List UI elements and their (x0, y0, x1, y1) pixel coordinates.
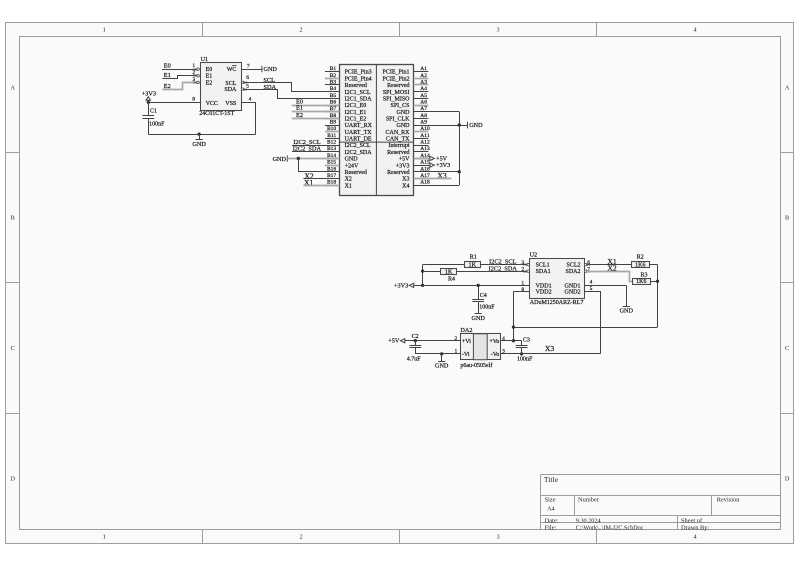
svg-text:A11: A11 (420, 133, 430, 139)
svg-text:I2C1_E1: I2C1_E1 (345, 110, 367, 116)
svg-text:100nF: 100nF (517, 357, 533, 363)
svg-text:File:: File: (545, 525, 557, 532)
svg-text:E0: E0 (206, 67, 213, 73)
svg-text:2: 2 (454, 336, 457, 342)
svg-text:ADuM1250ARZ-RL7: ADuM1250ARZ-RL7 (530, 300, 584, 306)
svg-text:A5: A5 (420, 93, 427, 99)
svg-text:A13: A13 (420, 146, 430, 152)
svg-text:WC: WC (227, 67, 237, 73)
svg-text:I2C2_SCL: I2C2_SCL (345, 143, 371, 149)
svg-text:1K6: 1K6 (636, 279, 646, 285)
svg-text:UART_RX: UART_RX (345, 123, 373, 129)
svg-text:A8: A8 (420, 113, 427, 119)
svg-text:Reserved: Reserved (387, 170, 409, 176)
svg-text:A12: A12 (420, 140, 430, 146)
svg-text:A: A (10, 85, 15, 92)
svg-text:A9: A9 (420, 120, 427, 126)
svg-text:PCIE_Pin1: PCIE_Pin1 (382, 70, 409, 76)
svg-text:I2C2_SDA: I2C2_SDA (345, 150, 373, 156)
svg-text:GND: GND (345, 157, 359, 163)
svg-text:C1: C1 (150, 109, 157, 115)
svg-text:I2C2_SDA: I2C2_SDA (489, 266, 518, 273)
svg-text:1K: 1K (445, 269, 453, 276)
svg-text:E1: E1 (206, 74, 213, 80)
svg-text:-Vi: -Vi (462, 352, 470, 358)
svg-text:GND: GND (435, 363, 449, 370)
svg-text:Sheet of: Sheet of (681, 517, 703, 524)
svg-text:PCIE_Pin3: PCIE_Pin3 (345, 70, 372, 76)
svg-text:GND: GND (264, 66, 278, 73)
svg-text:X4: X4 (402, 183, 409, 189)
svg-text:B2: B2 (330, 73, 337, 79)
svg-text:B: B (11, 215, 15, 222)
svg-text:Date:: Date: (545, 517, 559, 524)
svg-text:C2: C2 (412, 334, 419, 340)
svg-text:4: 4 (249, 96, 252, 102)
svg-text:9.30.2024: 9.30.2024 (576, 517, 601, 524)
svg-text:SCL1: SCL1 (536, 263, 550, 269)
svg-text:SDA1: SDA1 (536, 269, 551, 275)
svg-text:A3: A3 (420, 79, 427, 85)
svg-text:100nF: 100nF (149, 122, 165, 128)
svg-text:5: 5 (246, 83, 249, 89)
svg-text:I2C1_SDA: I2C1_SDA (345, 97, 373, 103)
svg-text:Reserved: Reserved (387, 83, 409, 89)
svg-text:GND: GND (471, 315, 485, 322)
svg-text:I2C1_E2: I2C1_E2 (345, 117, 367, 123)
svg-text:4: 4 (693, 533, 696, 540)
svg-text:I2C1_E0: I2C1_E0 (345, 103, 367, 109)
svg-text:3: 3 (497, 27, 500, 34)
svg-text:2: 2 (300, 27, 303, 34)
svg-text:C: C (785, 345, 789, 352)
svg-text:B6: B6 (330, 100, 337, 106)
svg-text:Size: Size (545, 496, 556, 503)
svg-text:SPI_CS: SPI_CS (390, 103, 409, 109)
svg-text:I2C1_SCL: I2C1_SCL (345, 90, 371, 96)
svg-text:SCL: SCL (225, 81, 236, 87)
svg-text:C4: C4 (480, 293, 487, 299)
svg-text:Interrupt: Interrupt (389, 143, 410, 149)
svg-text:SDA: SDA (263, 84, 276, 91)
svg-text:24C01CT-1ST: 24C01CT-1ST (199, 111, 234, 117)
svg-text:+3V3: +3V3 (142, 91, 156, 98)
svg-text:1: 1 (103, 27, 106, 34)
svg-text:E0: E0 (164, 62, 171, 69)
svg-text:SDA: SDA (224, 87, 237, 93)
svg-text:+5V: +5V (399, 157, 410, 163)
svg-text:B3: B3 (330, 79, 337, 85)
svg-text:1: 1 (103, 533, 106, 540)
svg-text:B: B (785, 215, 789, 222)
svg-text:B10: B10 (327, 126, 336, 132)
svg-text:4: 4 (502, 336, 505, 342)
svg-text:A15: A15 (420, 160, 430, 166)
svg-text:B9: B9 (330, 120, 337, 126)
svg-text:GND: GND (469, 122, 483, 129)
svg-text:+3V3: +3V3 (394, 283, 408, 290)
svg-text:1K6: 1K6 (635, 262, 645, 268)
svg-text:U2: U2 (530, 252, 538, 259)
svg-text:4.7uF: 4.7uF (407, 357, 422, 363)
svg-text:VSS: VSS (225, 101, 236, 107)
svg-text:Reserved: Reserved (345, 170, 367, 176)
svg-text:7: 7 (247, 64, 250, 70)
svg-text:C3: C3 (523, 337, 530, 343)
svg-text:A18: A18 (420, 180, 430, 186)
svg-text:100nF: 100nF (479, 304, 495, 310)
svg-text:+Vi: +Vi (462, 339, 471, 345)
svg-text:D: D (10, 475, 15, 482)
svg-text:A6: A6 (420, 100, 427, 106)
svg-text:E1: E1 (296, 104, 303, 111)
svg-text:A10: A10 (420, 126, 430, 132)
svg-text:R3: R3 (640, 273, 647, 279)
svg-text:VDD2: VDD2 (536, 290, 552, 296)
svg-text:4: 4 (693, 27, 696, 34)
svg-text:+5V: +5V (388, 337, 400, 344)
svg-text:A: A (785, 85, 790, 92)
svg-text:X2: X2 (345, 177, 352, 183)
svg-text:2: 2 (300, 533, 303, 540)
svg-text:+24V: +24V (345, 163, 359, 169)
svg-text:X3: X3 (545, 344, 554, 353)
svg-text:U1: U1 (201, 56, 209, 63)
svg-text:Reserved: Reserved (387, 150, 409, 156)
svg-text:VCC: VCC (206, 101, 218, 107)
svg-text:SDA2: SDA2 (565, 269, 580, 275)
svg-text:Revision: Revision (717, 496, 741, 503)
svg-text:8: 8 (521, 287, 524, 293)
svg-text:B12: B12 (327, 140, 336, 146)
svg-text:-Vo: -Vo (491, 352, 500, 358)
svg-text:SPI_MISO: SPI_MISO (383, 97, 410, 103)
svg-text:GND: GND (397, 123, 411, 129)
svg-text:CAN_RX: CAN_RX (385, 130, 410, 136)
svg-text:GND2: GND2 (565, 290, 581, 296)
svg-text:1K: 1K (469, 261, 477, 268)
svg-text:Number: Number (578, 496, 600, 503)
svg-text:+Vo: +Vo (489, 339, 499, 345)
svg-text:A2: A2 (420, 73, 427, 79)
svg-text:GND: GND (273, 156, 287, 163)
svg-text:SPI_CLK: SPI_CLK (386, 117, 410, 123)
svg-text:SPI_MOSI: SPI_MOSI (383, 90, 410, 96)
svg-text:PCIE_Pin4: PCIE_Pin4 (345, 76, 372, 82)
svg-text:E1: E1 (164, 72, 171, 79)
svg-text:X3: X3 (402, 177, 409, 183)
svg-text:GND: GND (397, 110, 411, 116)
svg-text:A4: A4 (547, 505, 555, 512)
svg-text:DA2: DA2 (460, 327, 472, 334)
svg-text:X1: X1 (345, 183, 352, 189)
svg-text:6: 6 (246, 75, 249, 81)
svg-text:Reserved: Reserved (345, 83, 367, 89)
svg-text:UART_DE: UART_DE (345, 137, 372, 143)
svg-text:3: 3 (497, 533, 500, 540)
svg-text:B4: B4 (330, 86, 337, 92)
svg-text:+3V3: +3V3 (436, 162, 450, 169)
svg-text:R4: R4 (448, 277, 455, 283)
svg-text:B5: B5 (330, 93, 337, 99)
svg-text:CAN_TX: CAN_TX (386, 137, 410, 143)
svg-text:GND: GND (192, 141, 206, 148)
svg-text:B15: B15 (327, 160, 336, 166)
svg-text:Title: Title (544, 475, 559, 484)
svg-text:R1: R1 (470, 255, 477, 261)
svg-text:PCIE_Pin2: PCIE_Pin2 (382, 76, 409, 82)
svg-text:GND: GND (620, 308, 634, 315)
svg-text:B1: B1 (330, 66, 337, 72)
svg-text:SCL2: SCL2 (566, 263, 580, 269)
svg-text:A1: A1 (420, 66, 427, 72)
svg-text:4: 4 (590, 280, 593, 286)
svg-text:A4: A4 (420, 86, 427, 92)
svg-text:VDD1: VDD1 (536, 284, 552, 290)
svg-text:C: C (11, 345, 15, 352)
svg-text:p6au-0505elf: p6au-0505elf (460, 362, 492, 369)
svg-text:UART_TX: UART_TX (345, 130, 373, 136)
svg-text:Drawn By:: Drawn By: (681, 525, 709, 532)
svg-text:R2: R2 (637, 255, 644, 261)
svg-text:GND1: GND1 (565, 284, 581, 290)
svg-text:X2: X2 (607, 264, 616, 273)
svg-text:+3V3: +3V3 (396, 163, 410, 169)
svg-text:E2: E2 (206, 80, 213, 86)
svg-text:B11: B11 (327, 133, 336, 139)
svg-text:8: 8 (192, 96, 195, 102)
svg-text:D: D (785, 475, 790, 482)
svg-text:C:\Work\..\IM-I2C.SchDoc: C:\Work\..\IM-I2C.SchDoc (576, 525, 644, 532)
